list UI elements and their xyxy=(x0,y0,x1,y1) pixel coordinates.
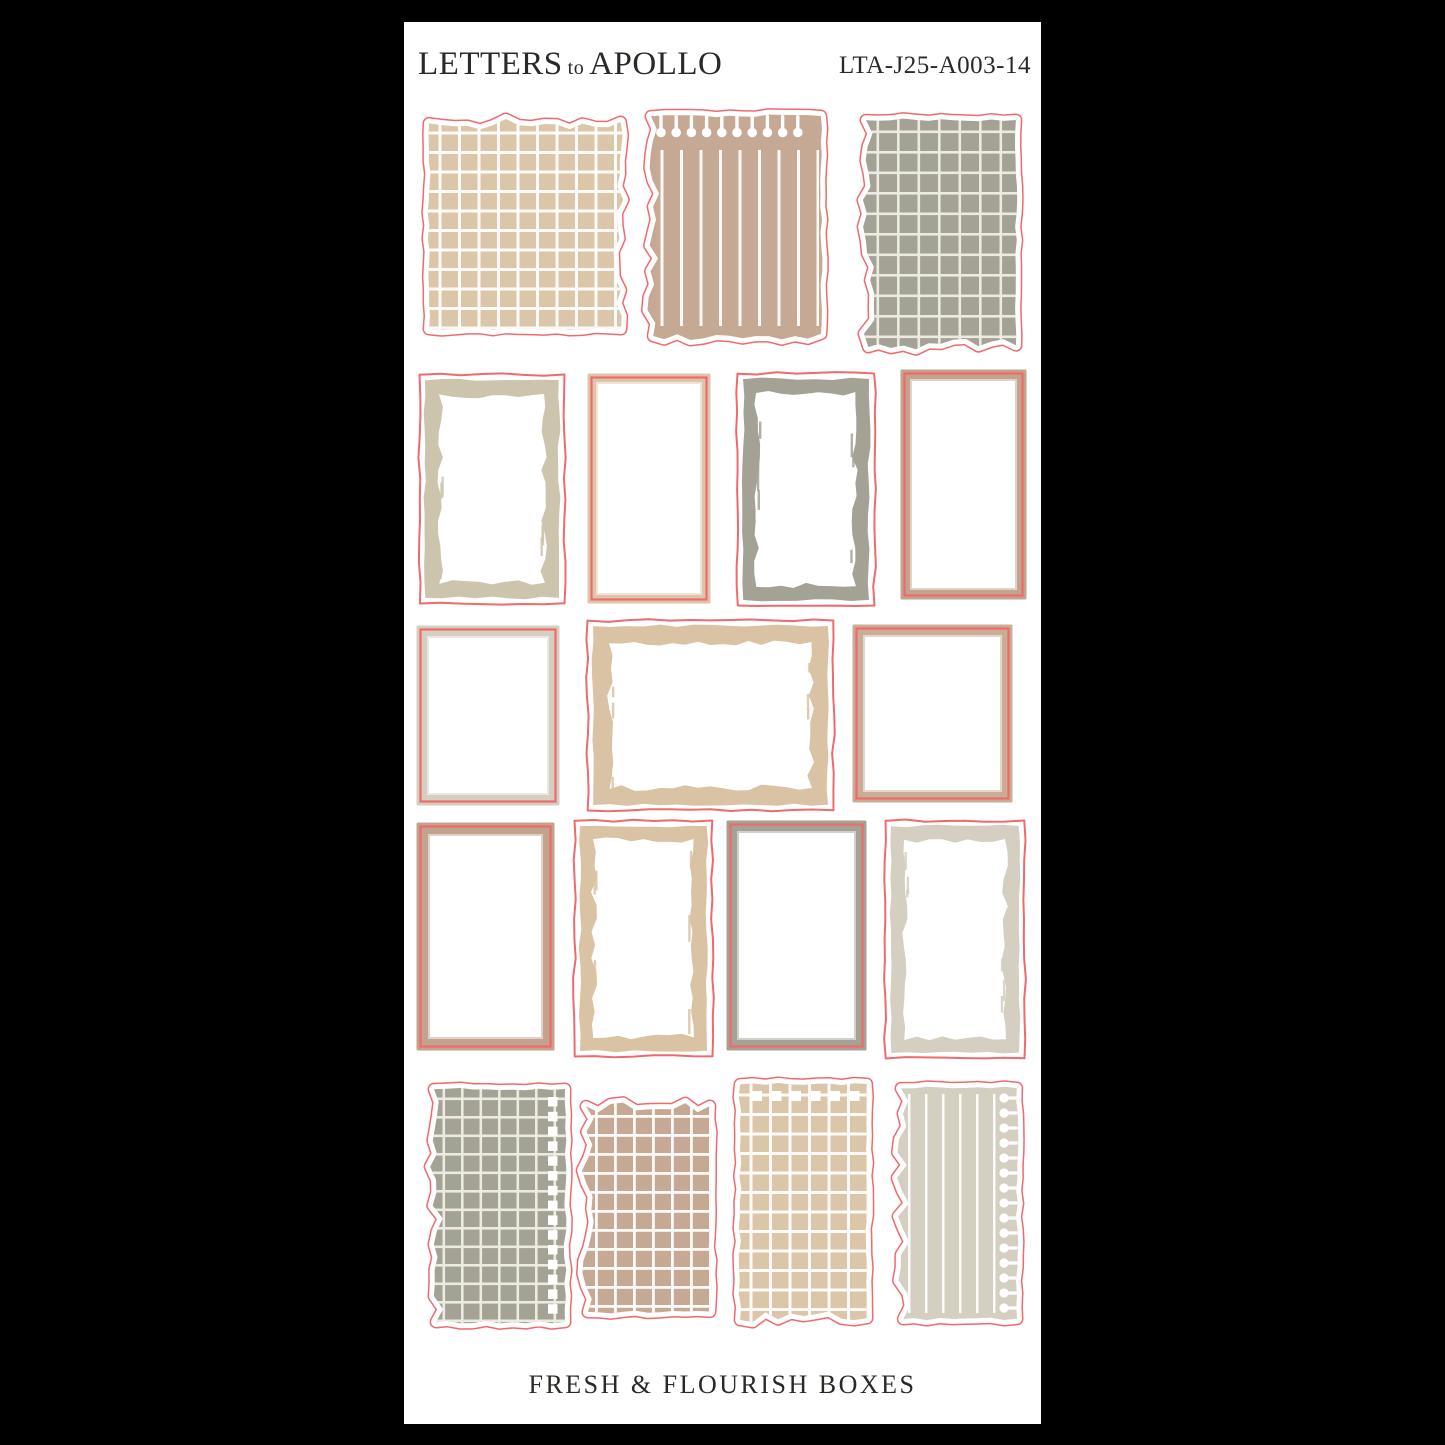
sticker-torn-stripe-mauve-keyholes xyxy=(641,106,831,346)
sticker-torn-grid-tan-squares xyxy=(730,1074,877,1330)
sticker-sheet: LETTERStoAPOLLO LTA-J25-A003-14 FRESH & … xyxy=(404,22,1041,1424)
stickers-layer xyxy=(404,22,1041,1424)
sticker-inset-frame-sage-tall xyxy=(726,820,867,1051)
sticker-torn-grid-sage xyxy=(856,110,1026,357)
sticker-inset-frame-rosewood-square xyxy=(852,624,1013,803)
sticker-inset-frame-tan xyxy=(587,373,711,604)
sticker-brush-frame-sand xyxy=(417,372,567,606)
sticker-inset-frame-mauve xyxy=(900,369,1027,600)
sticker-brush-frame-tan-tall xyxy=(572,818,715,1059)
page-background: { "header": { "brand_first": "LETTERS", … xyxy=(0,0,1445,1445)
sticker-inset-frame-mauve-tall xyxy=(416,822,555,1051)
sticker-torn-grid-tan xyxy=(419,112,631,339)
sticker-inset-frame-greige-square xyxy=(416,625,560,806)
sticker-torn-grid-sage-squares xyxy=(424,1079,575,1332)
sticker-torn-line-greige-keyholes xyxy=(891,1078,1027,1329)
sticker-torn-grid-mauve xyxy=(576,1096,720,1322)
sheet-title: FRESH & FLOURISH BOXES xyxy=(404,1370,1041,1400)
sticker-brush-frame-tan-square xyxy=(585,618,836,813)
sticker-brush-frame-greige-tall xyxy=(883,818,1027,1061)
sticker-brush-frame-sage xyxy=(735,371,877,608)
